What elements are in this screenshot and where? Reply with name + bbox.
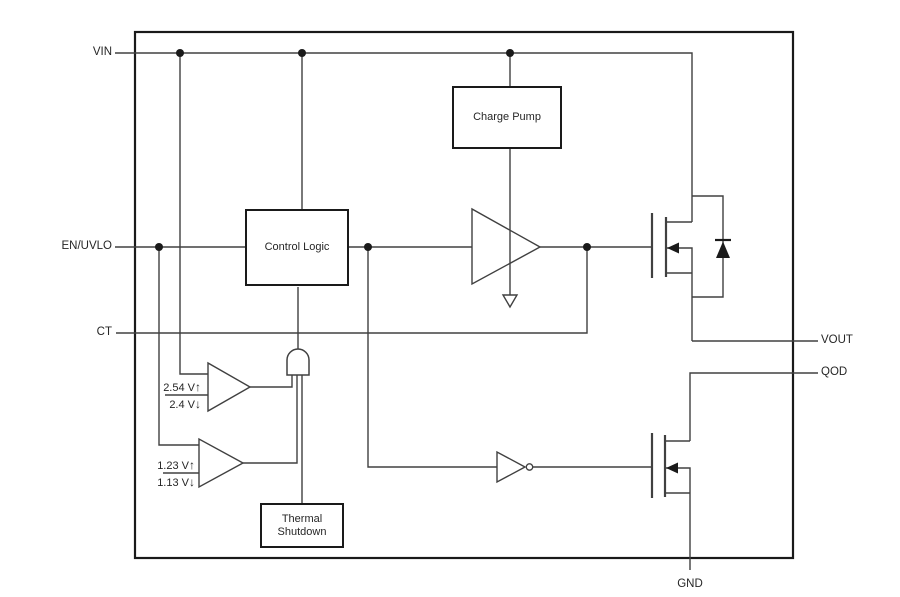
mosfet-body-arrow-icon <box>666 463 678 474</box>
wire-vin-to-comparator <box>180 53 208 374</box>
falling-arrow-icon: ↓ <box>195 397 201 411</box>
wire-to-inverter <box>368 247 497 467</box>
pin-label-vout: VOUT <box>821 334 853 347</box>
pin-label-gnd: GND <box>660 578 720 591</box>
pin-label-qod: QOD <box>821 366 847 379</box>
comparator-en-uvlo <box>199 439 243 487</box>
comparator-vin-uvlo <box>208 363 250 411</box>
rising-arrow-icon: ↑ <box>195 380 201 394</box>
threshold-vin-rising: 2.54 V↑ <box>146 381 201 394</box>
pin-label-ct: CT <box>30 326 112 339</box>
wire-en-to-comparator <box>159 247 199 445</box>
gate-driver-buffer <box>472 209 540 284</box>
junction-dots <box>155 49 591 251</box>
and-gate <box>287 349 309 375</box>
inverter-bubble <box>526 464 532 470</box>
charge-pump-label: Charge Pump <box>473 111 541 124</box>
qod-mosfet <box>652 433 678 498</box>
schematic-canvas <box>0 0 900 597</box>
pin-label-en-uvlo: EN/UVLO <box>30 240 112 253</box>
thermal-shutdown-label: Thermal Shutdown <box>278 513 327 539</box>
threshold-en-rising: 1.23 V↑ <box>140 459 195 472</box>
ground-arrow <box>503 295 517 307</box>
wire-comp2-to-and <box>243 375 297 463</box>
threshold-vin-falling: 2.4 V↓ <box>146 398 201 411</box>
wire-main-fet-body-source <box>666 248 692 341</box>
charge-pump-block: Charge Pump <box>452 86 562 149</box>
block-diagram: Charge Pump Control Logic Thermal Shutdo… <box>0 0 900 597</box>
control-logic-block: Control Logic <box>245 209 349 286</box>
wire-body-diode-branch <box>692 196 723 297</box>
pin-label-vin: VIN <box>30 46 112 59</box>
falling-arrow-icon: ↓ <box>189 475 195 489</box>
wire-comp1-to-and <box>250 375 292 387</box>
thermal-shutdown-block: Thermal Shutdown <box>260 503 344 548</box>
wire-vin-rail <box>115 53 692 222</box>
mosfet-body-arrow-icon <box>667 243 679 254</box>
body-diode <box>715 240 731 258</box>
rising-arrow-icon: ↑ <box>189 458 195 472</box>
control-logic-label: Control Logic <box>265 241 330 254</box>
wire-qod-fet-body-source <box>665 468 690 570</box>
threshold-en-falling: 1.13 V↓ <box>140 476 195 489</box>
main-pass-mosfet <box>652 213 679 278</box>
inverter <box>497 452 525 482</box>
wire-qod-lead <box>690 373 818 441</box>
